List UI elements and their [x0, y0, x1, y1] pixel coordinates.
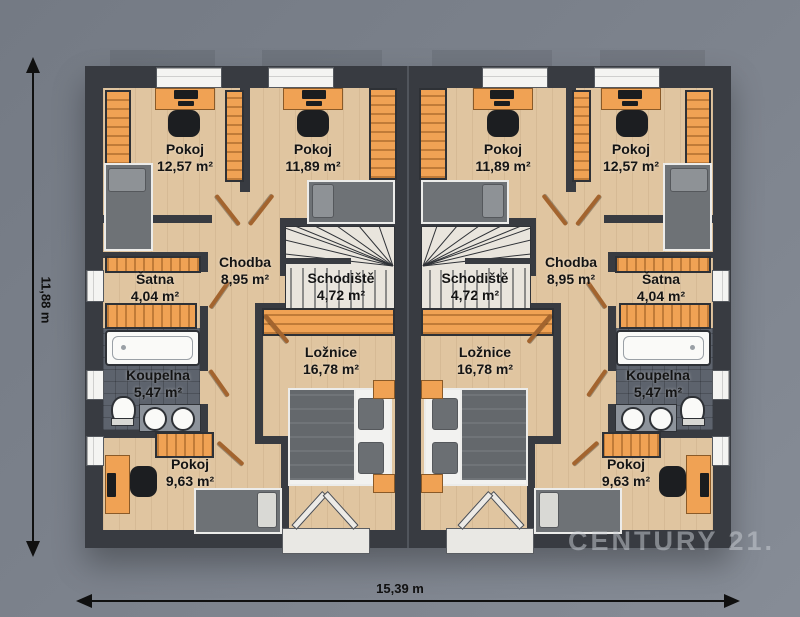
room-area: 4,04 m² — [637, 288, 685, 305]
bed-blanket — [290, 390, 356, 480]
room-name: Schodiště — [308, 270, 375, 287]
pillow — [432, 442, 458, 474]
arrow-up-icon — [26, 57, 40, 73]
bathtub-drain — [121, 345, 126, 350]
keyboard-icon — [622, 101, 638, 106]
wardrobe — [105, 90, 131, 166]
nightstand — [373, 474, 395, 493]
room-label-loznice-left: Ložnice 16,78 m² — [303, 344, 359, 378]
room-area: 12,57 m² — [157, 158, 213, 175]
office-chair — [616, 110, 648, 137]
unit-right — [408, 66, 731, 548]
room-label-pokoj-right-c: Pokoj 9,63 m² — [602, 456, 650, 490]
wall-corridor-a — [200, 252, 208, 272]
window — [712, 436, 730, 466]
room-name: Koupelna — [626, 367, 690, 384]
nightstand — [373, 380, 395, 399]
room-area: 8,95 m² — [545, 271, 597, 288]
wardrobe — [105, 303, 197, 329]
office-chair — [168, 110, 200, 137]
room-name: Ložnice — [457, 344, 513, 361]
window — [482, 67, 548, 88]
toilet-tank — [682, 418, 705, 426]
dimension-width: 15,39 m — [376, 581, 424, 596]
single-bed — [307, 180, 395, 224]
room-label-loznice-right: Ložnice 16,78 m² — [457, 344, 513, 378]
pillow — [432, 398, 458, 430]
pillow — [108, 168, 146, 192]
room-area: 11,89 m² — [475, 158, 530, 175]
single-bed — [104, 163, 153, 251]
room-name: Koupelna — [126, 367, 190, 384]
office-chair — [130, 466, 157, 497]
room-name: Šatna — [131, 271, 179, 288]
pillow — [257, 492, 277, 528]
room-area: 4,04 m² — [131, 288, 179, 305]
window — [156, 67, 222, 88]
toilet-tank — [111, 418, 134, 426]
room-label-pokoj-right-a: Pokoj 12,57 m² — [603, 141, 659, 175]
office-chair — [659, 466, 686, 497]
window — [712, 370, 730, 400]
pillow — [482, 184, 504, 218]
office-chair — [297, 110, 329, 137]
wardrobe — [602, 432, 661, 458]
dimension-line-vertical — [32, 66, 34, 548]
room-name: Pokoj — [157, 141, 213, 158]
wall-corridor-b — [200, 306, 208, 371]
room-area: 9,63 m² — [602, 473, 650, 490]
pillow — [358, 442, 384, 474]
room-label-schodiste-left: Schodiště 4,72 m² — [308, 270, 375, 304]
desk — [155, 88, 215, 110]
room-name: Pokoj — [603, 141, 659, 158]
room-label-pokoj-left-b: Pokoj 11,89 m² — [285, 141, 340, 175]
monitor-icon — [618, 90, 642, 99]
sink — [621, 407, 645, 431]
room-area: 16,78 m² — [303, 361, 359, 378]
monitor-icon — [107, 473, 116, 497]
floor-plan: Pokoj 12,57 m² Pokoj 11,89 m² Chodba 8,9… — [0, 0, 800, 617]
pillow — [539, 492, 559, 528]
room-area: 12,57 m² — [603, 158, 659, 175]
room-label-chodba-right: Chodba 8,95 m² — [545, 254, 597, 288]
single-bed — [663, 163, 712, 251]
room-name: Schodiště — [442, 270, 509, 287]
office-chair — [487, 110, 519, 137]
room-area: 5,47 m² — [126, 384, 190, 401]
nightstand — [421, 380, 443, 399]
desk — [686, 455, 711, 514]
room-label-pokoj-left-c: Pokoj 9,63 m² — [166, 456, 214, 490]
window — [712, 270, 730, 302]
wall-loznice-left — [553, 309, 561, 444]
window — [268, 67, 334, 88]
room-label-pokoj-right-b: Pokoj 11,89 m² — [475, 141, 530, 175]
window — [86, 270, 104, 302]
double-bed — [424, 388, 528, 486]
roof-shadow — [110, 50, 215, 66]
room-name: Pokoj — [166, 456, 214, 473]
sink — [171, 407, 195, 431]
single-bed — [421, 180, 509, 224]
room-name: Chodba — [219, 254, 271, 271]
room-name: Pokoj — [475, 141, 530, 158]
keyboard-icon — [494, 101, 510, 106]
pillow — [670, 168, 708, 192]
sink — [143, 407, 167, 431]
wall-corridor-b — [608, 306, 616, 371]
desk — [283, 88, 343, 110]
double-bed — [288, 388, 392, 486]
wardrobe — [225, 90, 244, 182]
nightstand — [421, 474, 443, 493]
sink — [649, 407, 673, 431]
desk — [105, 455, 130, 514]
room-name: Pokoj — [285, 141, 340, 158]
wardrobe — [619, 303, 711, 329]
wardrobe — [369, 88, 397, 180]
unit-left — [85, 66, 408, 548]
room-name: Pokoj — [602, 456, 650, 473]
room-label-chodba-left: Chodba 8,95 m² — [219, 254, 271, 288]
wall-top — [408, 66, 731, 88]
room-area: 4,72 m² — [442, 287, 509, 304]
wardrobe — [572, 90, 591, 182]
bathtub-drain — [690, 345, 695, 350]
room-area: 4,72 m² — [308, 287, 375, 304]
room-label-koupelna-right: Koupelna 5,47 m² — [626, 367, 690, 401]
room-name: Chodba — [545, 254, 597, 271]
wall-left — [713, 66, 731, 548]
monitor-icon — [490, 90, 514, 99]
room-area: 9,63 m² — [166, 473, 214, 490]
dimension-line-horizontal — [85, 600, 731, 602]
balcony-threshold — [282, 528, 370, 554]
window — [86, 370, 104, 400]
keyboard-icon — [306, 101, 322, 106]
single-bed — [194, 488, 282, 534]
arrow-down-icon — [26, 541, 40, 557]
room-name: Ložnice — [303, 344, 359, 361]
arrow-left-icon — [76, 594, 92, 608]
desk — [473, 88, 533, 110]
wall-top — [85, 66, 408, 88]
monitor-icon — [302, 90, 326, 99]
pillow — [358, 398, 384, 430]
room-area: 8,95 m² — [219, 271, 271, 288]
room-label-pokoj-left-a: Pokoj 12,57 m² — [157, 141, 213, 175]
window — [86, 436, 104, 466]
century21-watermark: CENTURY 21. — [568, 526, 775, 557]
wardrobe — [685, 90, 711, 166]
room-label-satna-right: Šatna 4,04 m² — [637, 271, 685, 305]
room-area: 11,89 m² — [285, 158, 340, 175]
room-label-satna-left: Šatna 4,04 m² — [131, 271, 179, 305]
room-label-koupelna-left: Koupelna 5,47 m² — [126, 367, 190, 401]
bathtub — [105, 330, 200, 366]
room-area: 5,47 m² — [626, 384, 690, 401]
room-label-schodiste-right: Schodiště 4,72 m² — [442, 270, 509, 304]
party-wall-seam — [407, 66, 409, 548]
keyboard-icon — [178, 101, 194, 106]
bed-blanket — [460, 390, 526, 480]
pillow — [312, 184, 334, 218]
room-name: Šatna — [637, 271, 685, 288]
roof-shadow — [432, 50, 552, 66]
roof-shadow — [600, 50, 705, 66]
desk — [601, 88, 661, 110]
arrow-right-icon — [724, 594, 740, 608]
window — [594, 67, 660, 88]
wall-left — [85, 66, 103, 548]
monitor-icon — [700, 473, 709, 497]
dimension-height: 11,88 m — [39, 277, 54, 324]
balcony-threshold — [446, 528, 534, 554]
wardrobe — [155, 432, 214, 458]
room-area: 16,78 m² — [457, 361, 513, 378]
monitor-icon — [174, 90, 198, 99]
bathtub — [616, 330, 711, 366]
roof-shadow — [262, 50, 382, 66]
wardrobe — [419, 88, 447, 180]
